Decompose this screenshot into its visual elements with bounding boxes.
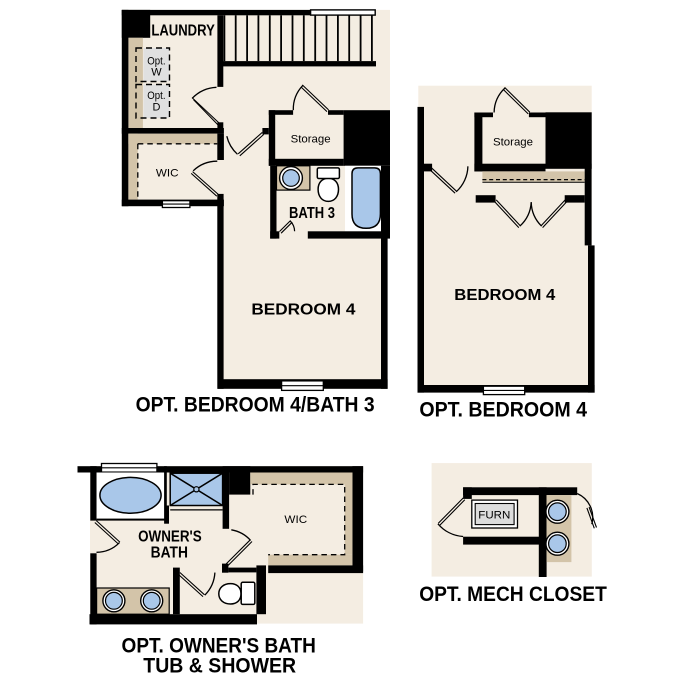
svg-text:BATH 3: BATH 3 [289, 205, 335, 222]
svg-text:OPT. BEDROOM 4/BATH 3: OPT. BEDROOM 4/BATH 3 [136, 393, 375, 417]
svg-text:BATH: BATH [151, 545, 188, 562]
svg-text:Storage: Storage [291, 134, 331, 146]
svg-text:FURN: FURN [478, 510, 510, 522]
svg-text:WIC: WIC [284, 514, 307, 526]
svg-text:WIC: WIC [156, 167, 179, 179]
svg-text:LAUNDRY: LAUNDRY [151, 22, 215, 39]
svg-text:OPT. BEDROOM 4: OPT. BEDROOM 4 [419, 398, 587, 422]
svg-text:Storage: Storage [493, 136, 533, 148]
svg-text:BEDROOM 4: BEDROOM 4 [251, 302, 355, 319]
svg-text:TUB & SHOWER: TUB & SHOWER [143, 654, 296, 678]
svg-text:OWNER'S: OWNER'S [138, 529, 202, 546]
svg-text:D: D [153, 102, 161, 114]
svg-text:Opt.: Opt. [147, 90, 165, 102]
svg-text:OPT. MECH CLOSET: OPT. MECH CLOSET [419, 582, 607, 606]
svg-text:W: W [151, 67, 162, 79]
svg-text:BEDROOM 4: BEDROOM 4 [454, 287, 555, 304]
